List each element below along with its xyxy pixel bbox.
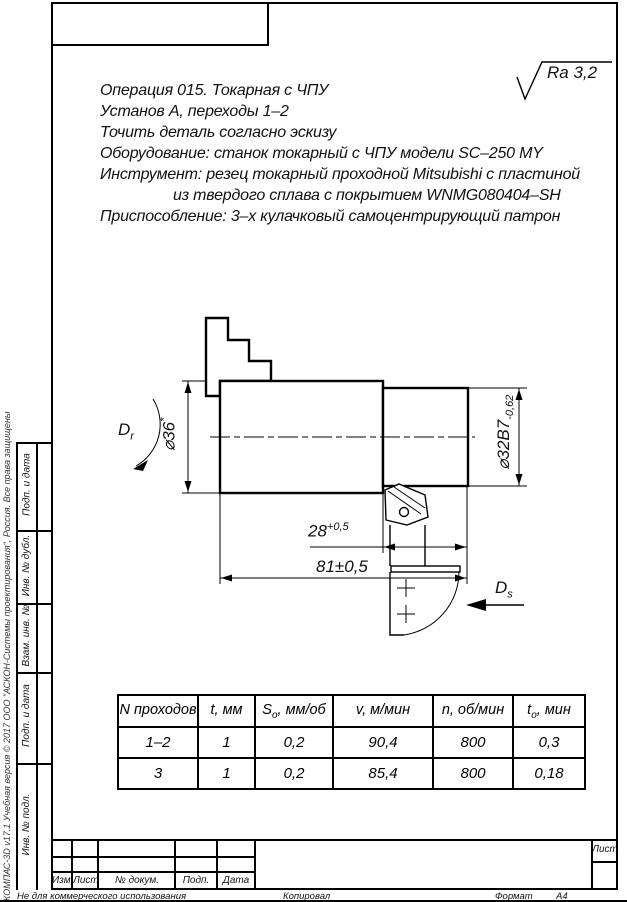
table-cell: 800 [433,758,513,789]
table-cell: 3 [118,758,198,789]
tech-line: из твердого сплава с покрытием WNMG08040… [173,187,561,206]
turret-arc [404,572,459,635]
table-row: 3 1 0,2 85,4 800 0,18 [118,758,585,789]
dim-value: 28 [308,522,327,541]
side-column-line [36,442,38,890]
table-cell: 0,3 [513,727,585,758]
table-cell: 85,4 [333,758,433,789]
table-header-row: N проходов t, мм So, мм/об v, м/мин n, о… [118,695,585,727]
table-cell: 0,18 [513,758,585,789]
reference-star: * [159,418,171,422]
table-cell: 1–2 [118,727,198,758]
revision-col-label: № докум. [100,875,174,886]
tool-shank [390,525,425,566]
header-cell: t, мм [198,695,255,727]
top-left-stamp-box [51,2,269,46]
rotation-dir-label: Dr [118,420,134,442]
header-cell: n, об/мин [433,695,513,727]
dir-letter: D [118,420,130,439]
revision-col-label: Подп. [176,875,216,886]
side-label: Взам. инв. № [21,601,32,670]
table-cell: 1 [198,758,255,789]
dim-value: ⌀36 [159,422,178,451]
cutting-tool [385,484,460,635]
titleblock-line [254,840,256,890]
header-cell: to, мин [513,695,585,727]
watermark-text: КОМПАС-3D v17.1 Учебная версия © 2017 ОО… [2,381,12,901]
dim-tolerance: -0,62 [504,395,516,420]
table-cell: 0,2 [255,758,333,789]
feed-dir-label: Ds [495,578,513,600]
sheet-cell-label: Лист [592,844,618,855]
roughness-value: Ra 3,2 [547,63,597,83]
position-cross-marks [397,579,415,623]
tech-line: Инструмент: резец токарный проходной Mit… [100,166,580,185]
table-row: 1–2 1 0,2 90,4 800 0,3 [118,727,585,758]
revision-col-label: Лист [73,875,97,886]
dir-letter: D [495,578,507,597]
feed-arrow [466,599,524,611]
titleblock-line [51,856,256,858]
dir-sub: s [507,588,513,600]
tech-line: Операция 015. Токарная с ЧПУ [100,82,328,101]
rotation-arrow [133,399,160,471]
table-cell: 0,2 [255,727,333,758]
side-label: Инв. № дубл. [21,529,32,602]
table-cell: 800 [433,727,513,758]
revision-col-label: Дата [218,875,254,886]
titleblock-line [51,839,618,841]
dim-diameter-36: ⌀36* [159,399,180,469]
dim-value: ⌀32B7 [494,420,513,470]
header-cell: N проходов [118,695,198,727]
revision-col-label: Изм. [52,875,72,886]
side-label: Инв. № подл. [21,761,32,888]
tech-line: Установ А, переходы 1–2 [100,103,289,122]
tool-holder-plate [391,566,460,572]
cutting-mode-table: N проходов t, мм So, мм/об v, м/мин n, о… [117,694,586,790]
titleblock-line [51,871,256,873]
turret-body [390,572,404,635]
titleblock-line [591,861,618,863]
header-cell: v, м/мин [333,695,433,727]
drawing-sheet: Операция 015. Токарная с ЧПУ Установ А, … [0,0,627,902]
side-label: Подп. и дата [21,441,32,529]
turning-sketch [100,300,560,648]
dir-sub: r [130,430,134,442]
tech-line: Приспособление: 3–х кулачковый самоцентр… [100,208,560,227]
table-cell: 1 [198,727,255,758]
dim-length-28: 28+0,5 [308,521,349,542]
dim-length-81: 81±0,5 [316,557,368,577]
dim-tolerance: +0,5 [327,521,349,533]
side-label: Подп. и дата [21,670,32,761]
header-cell: So, мм/об [255,695,333,727]
tech-line: Точить деталь согласно эскизу [100,124,336,143]
table-cell: 90,4 [333,727,433,758]
dim-diameter-32: ⌀32B7-0,62 [494,374,516,490]
tech-line: Оборудование: станок токарный с ЧПУ моде… [100,145,543,164]
side-column-line [16,442,18,890]
